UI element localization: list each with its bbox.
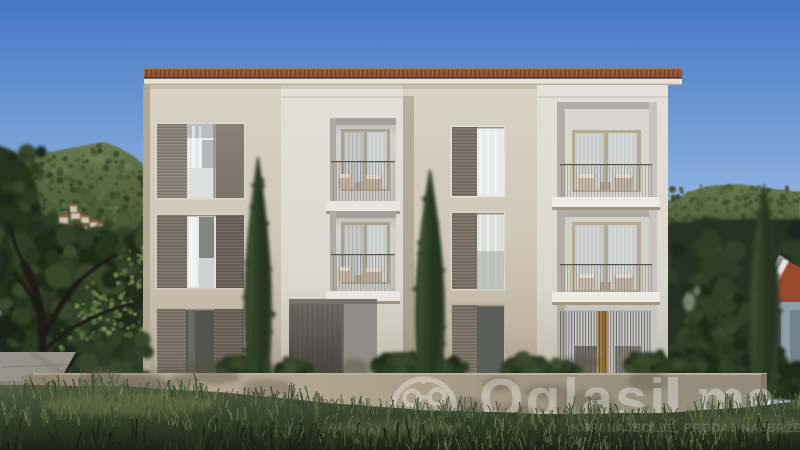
svg-text:KUPI NAJBOLJE, PRODAJ NAJBRŽE: KUPI NAJBOLJE, PRODAJ NAJBRŽE <box>572 420 800 435</box>
